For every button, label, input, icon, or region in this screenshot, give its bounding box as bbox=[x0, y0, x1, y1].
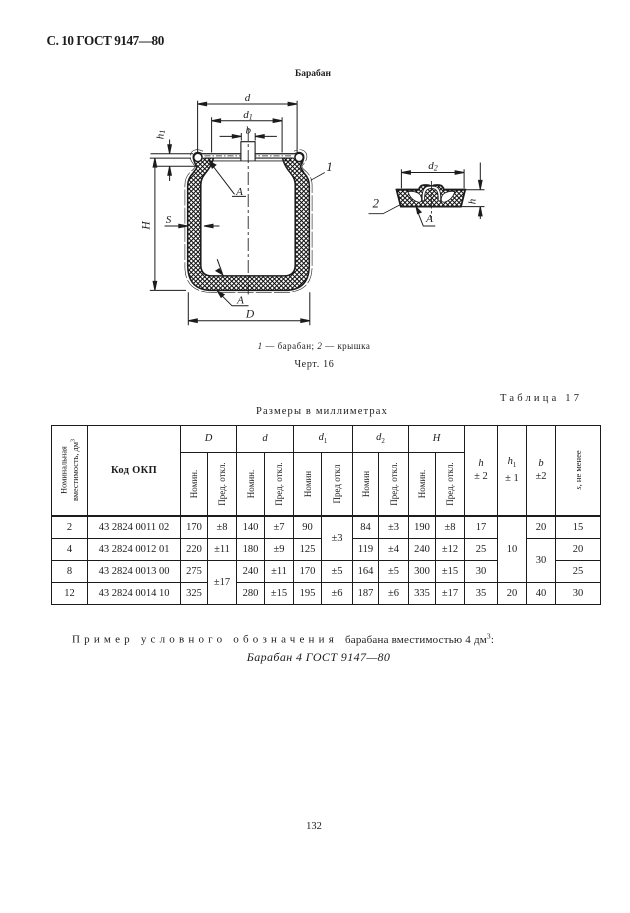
svg-text:A: A bbox=[425, 213, 433, 225]
svg-text:d2: d2 bbox=[428, 160, 438, 173]
svg-text:D: D bbox=[245, 308, 255, 320]
svg-text:2: 2 bbox=[372, 196, 379, 211]
svg-text:S: S bbox=[166, 214, 172, 226]
svg-text:h: h bbox=[467, 198, 479, 204]
svg-text:1: 1 bbox=[326, 159, 333, 174]
svg-text:A: A bbox=[235, 186, 243, 198]
svg-text:h1: h1 bbox=[155, 130, 168, 140]
svg-text:A: A bbox=[236, 295, 244, 307]
svg-text:d: d bbox=[245, 92, 251, 104]
svg-text:H: H bbox=[141, 221, 153, 231]
svg-text:d1: d1 bbox=[243, 109, 253, 122]
svg-text:b: b bbox=[246, 125, 252, 137]
